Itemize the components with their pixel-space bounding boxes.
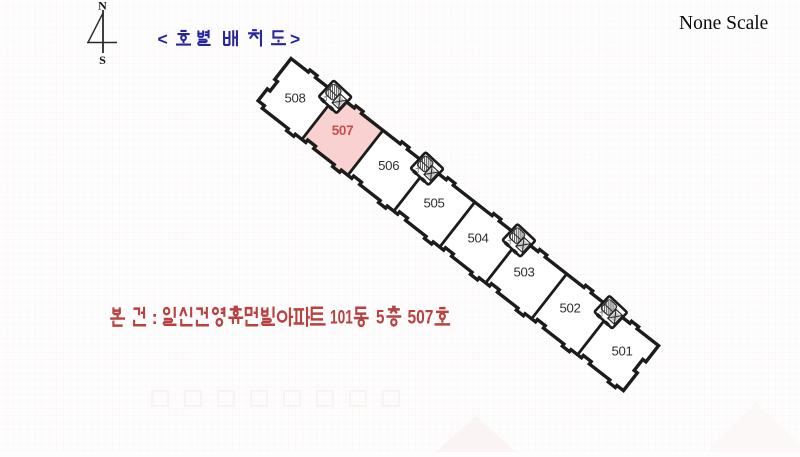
svg-text:502: 502 [559, 301, 580, 316]
svg-text:505: 505 [423, 196, 444, 211]
svg-text:N: N [98, 0, 107, 13]
svg-text:507: 507 [408, 306, 434, 328]
svg-text:5: 5 [376, 306, 385, 328]
svg-text:503: 503 [513, 265, 534, 280]
svg-text:501: 501 [611, 344, 632, 359]
svg-text:101: 101 [330, 306, 353, 328]
svg-text::: : [152, 308, 158, 329]
svg-text:507: 507 [332, 123, 354, 138]
svg-text:504: 504 [467, 231, 488, 246]
svg-text:506: 506 [378, 158, 399, 173]
svg-text:None Scale: None Scale [679, 13, 768, 34]
svg-text:508: 508 [284, 90, 305, 105]
svg-text:>: > [290, 29, 300, 49]
svg-text:<: < [158, 29, 168, 49]
svg-text:S: S [99, 53, 106, 67]
